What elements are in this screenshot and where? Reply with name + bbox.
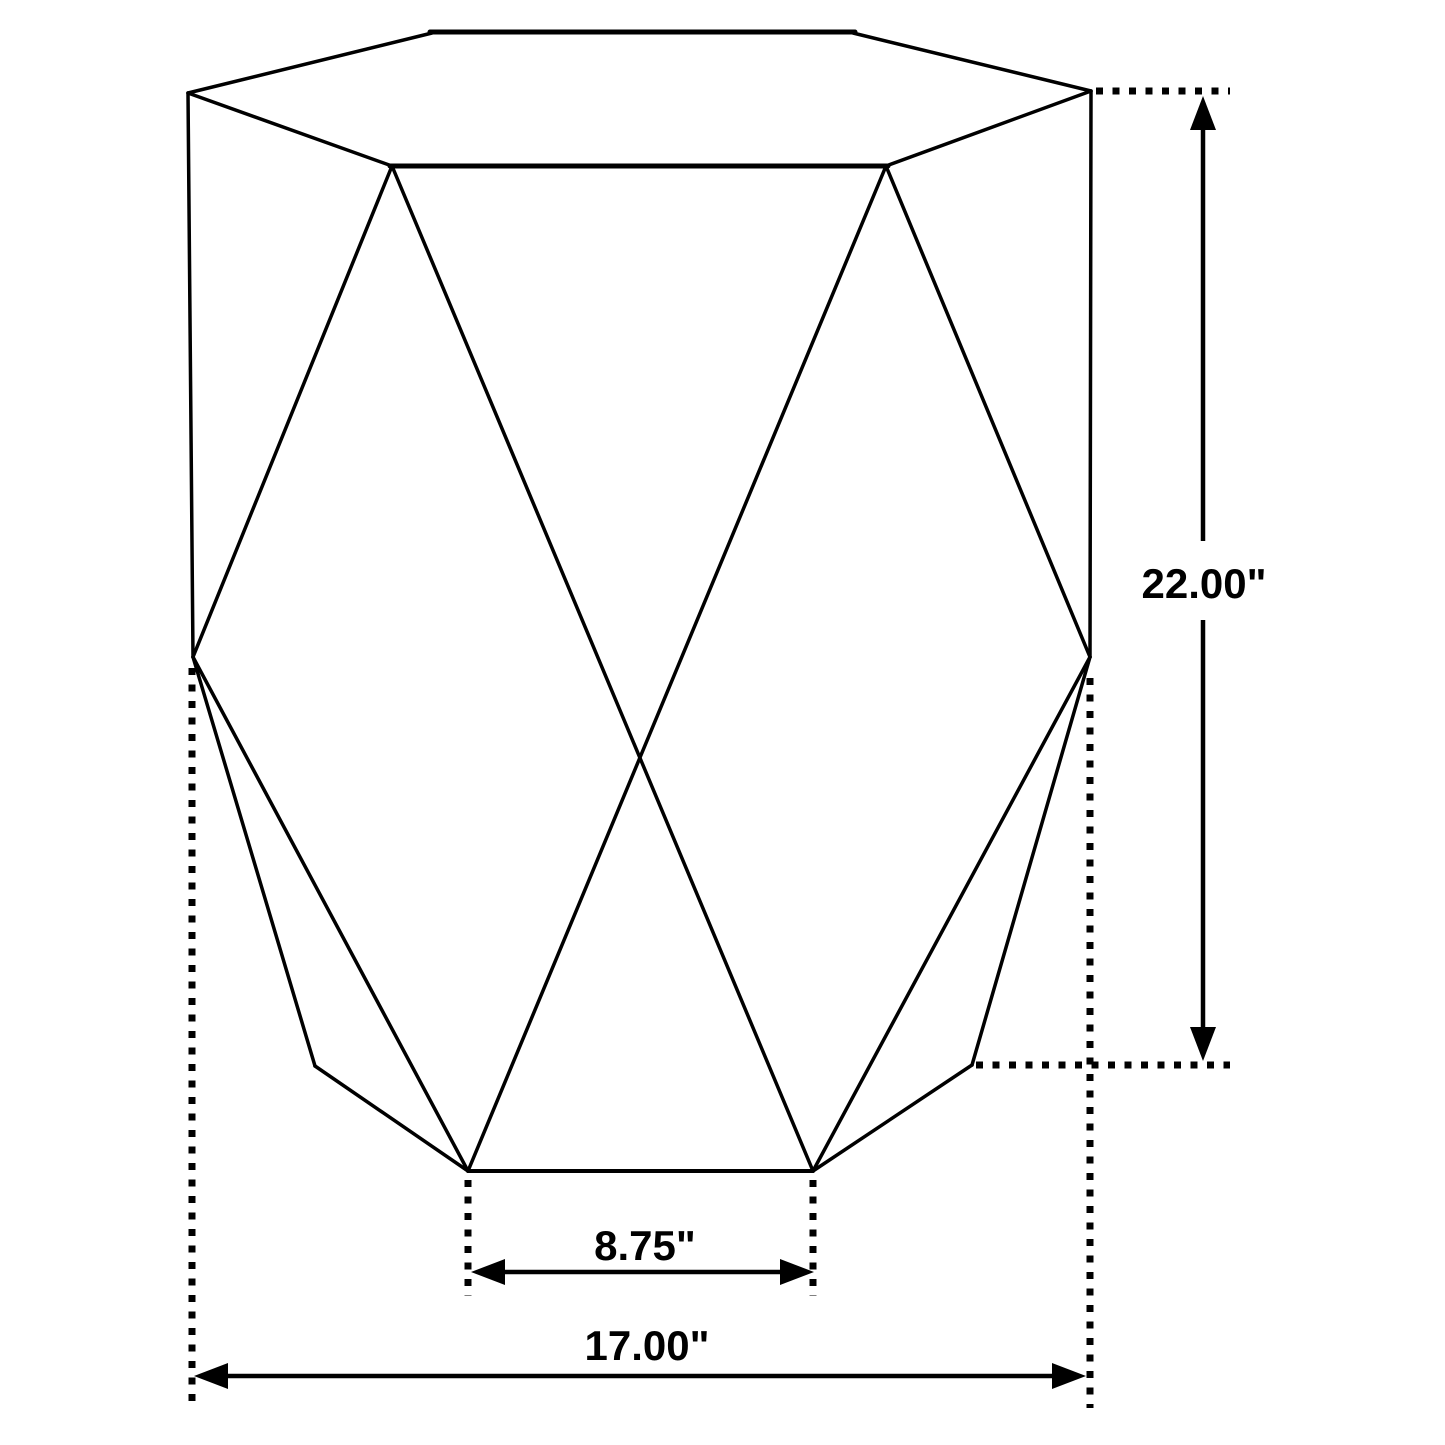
left-vertical-edge bbox=[188, 93, 193, 657]
facet-diagonal-topleft-to-botright bbox=[392, 166, 813, 1171]
bottom-right-corner-edge bbox=[813, 1065, 972, 1171]
base-arrowhead-right bbox=[780, 1259, 814, 1285]
table-line-drawing: 22.00" 17.00" 8.75" bbox=[0, 0, 1445, 1445]
height-arrowhead-up bbox=[1190, 96, 1216, 130]
height-arrowhead-down bbox=[1190, 1027, 1216, 1061]
width-arrowhead-right bbox=[1052, 1363, 1086, 1389]
table-facet-diagonals bbox=[193, 166, 1090, 1171]
height-dimension: 22.00" bbox=[976, 91, 1267, 1065]
base-arrowhead-left bbox=[471, 1259, 505, 1285]
facet-diagonal-topleft-to-midleft bbox=[193, 166, 392, 657]
bottom-left-corner-edge bbox=[315, 1066, 468, 1171]
top-face-far-right-edge bbox=[853, 33, 1091, 91]
table-top-face bbox=[188, 32, 1091, 166]
facet-diagonal-topright-to-botleft bbox=[468, 166, 886, 1171]
table-side-edges bbox=[188, 91, 1091, 1171]
facet-diagonal-midright-to-botright bbox=[813, 657, 1090, 1171]
facet-diagonal-midleft-to-botleft bbox=[193, 657, 468, 1171]
facet-diagonal-topright-to-midright bbox=[886, 166, 1090, 657]
top-face-near-left-edge bbox=[188, 93, 392, 166]
height-dimension-label: 22.00" bbox=[1141, 560, 1266, 607]
width-arrowhead-left bbox=[194, 1363, 228, 1389]
right-lower-slant-edge bbox=[972, 657, 1090, 1065]
left-lower-slant-edge bbox=[193, 657, 315, 1066]
overall-width-dimension-label: 17.00" bbox=[584, 1322, 709, 1369]
dimension-diagram: 22.00" 17.00" 8.75" bbox=[0, 0, 1445, 1445]
base-width-dimension-label: 8.75" bbox=[594, 1222, 696, 1269]
top-face-near-right-edge bbox=[886, 91, 1091, 166]
right-vertical-edge bbox=[1090, 91, 1091, 657]
top-face-far-left-edge bbox=[188, 33, 432, 93]
overall-width-dimension: 17.00" bbox=[192, 668, 1090, 1408]
base-width-dimension: 8.75" bbox=[468, 1180, 814, 1296]
